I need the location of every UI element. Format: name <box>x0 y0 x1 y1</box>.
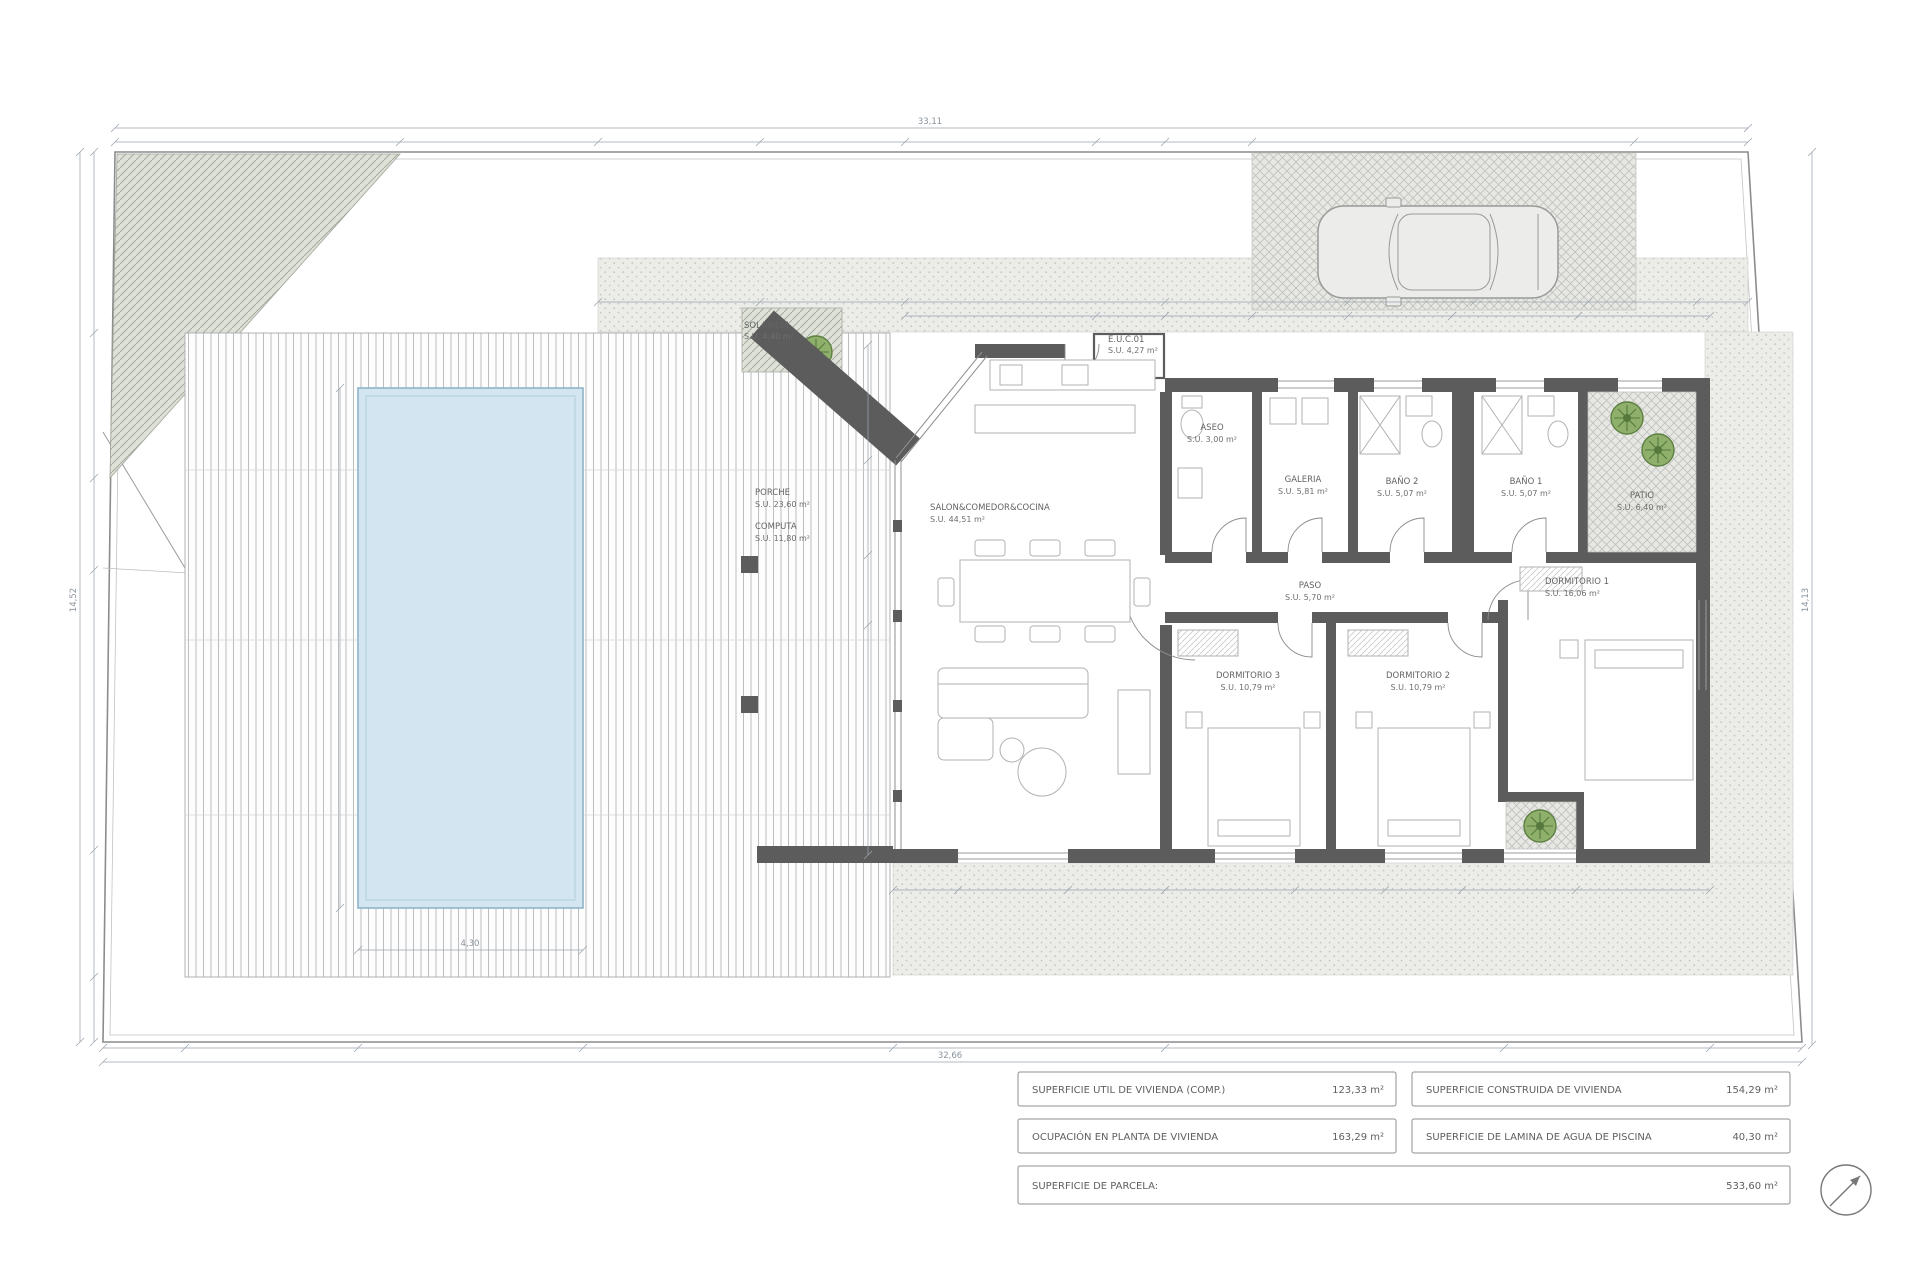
dim-bottom-total: 32,66 <box>938 1051 962 1061</box>
svg-text:S.U. 10,79 m²: S.U. 10,79 m² <box>1390 683 1445 692</box>
car-top-view <box>1318 198 1558 306</box>
table-row-value: 163,29 m² <box>1332 1132 1384 1143</box>
plant-icon <box>1611 402 1643 434</box>
floor-plan-drawing: 33,11 32,66 14,52 14,13 4,30 SALON&COMED… <box>0 0 1920 1280</box>
room-label-bano2: BAÑO 2 <box>1386 476 1419 487</box>
dim-top-total: 33,11 <box>918 117 942 127</box>
room-label-aseo: ASEO <box>1200 423 1224 433</box>
table-row-value: 123,33 m² <box>1332 1085 1384 1096</box>
room-label-dorm1: DORMITORIO 1 <box>1545 577 1609 587</box>
room-label-computa: COMPUTA <box>755 522 797 532</box>
room-label-porche: PORCHE <box>755 488 790 498</box>
room-label-dorm2: DORMITORIO 2 <box>1386 671 1450 681</box>
dim-left-total: 14,52 <box>69 588 79 612</box>
floor-plan-page: 33,11 32,66 14,52 14,13 4,30 SALON&COMED… <box>0 0 1920 1280</box>
area-summary-table: SUPERFICIE UTIL DE VIVIENDA (COMP.) 123,… <box>1018 1072 1790 1204</box>
dim-pool-width: 4,30 <box>461 939 480 949</box>
svg-text:S.U. 44,51 m²: S.U. 44,51 m² <box>930 515 985 524</box>
table-row-label: OCUPACIÓN EN PLANTA DE VIVIENDA <box>1032 1130 1218 1143</box>
room-label-dorm3: DORMITORIO 3 <box>1216 671 1280 681</box>
svg-text:S.U. 5,81 m²: S.U. 5,81 m² <box>1278 487 1328 496</box>
svg-text:S.U. 5,07 m²: S.U. 5,07 m² <box>1377 489 1427 498</box>
table-row-value: 154,29 m² <box>1726 1085 1778 1096</box>
svg-text:S.U. 5,70 m²: S.U. 5,70 m² <box>1285 593 1335 602</box>
table-row-label: SUPERFICIE UTIL DE VIVIENDA (COMP.) <box>1032 1085 1225 1096</box>
table-row-label: SUPERFICIE DE LAMINA DE AGUA DE PISCINA <box>1426 1132 1652 1143</box>
svg-text:S.U. 6,40 m²: S.U. 6,40 m² <box>1617 503 1667 512</box>
north-arrow-icon <box>1821 1165 1871 1215</box>
svg-text:S.U. 3,00 m²: S.U. 3,00 m² <box>1187 435 1237 444</box>
svg-text:S.U. 5,07 m²: S.U. 5,07 m² <box>1501 489 1551 498</box>
room-label-euc01: E.U.C.01 <box>1108 335 1144 345</box>
room-label-solarium: SOLARIUM <box>744 321 789 331</box>
table-row-label: SUPERFICIE CONSTRUIDA DE VIVIENDA <box>1426 1085 1622 1096</box>
table-row-value: 533,60 m² <box>1726 1181 1778 1192</box>
svg-text:S.U. 16,06 m²: S.U. 16,06 m² <box>1545 589 1600 598</box>
svg-text:S.U. 10,79 m²: S.U. 10,79 m² <box>1220 683 1275 692</box>
room-label-salon: SALON&COMEDOR&COCINA <box>930 503 1050 513</box>
dim-right-total: 14,13 <box>1801 588 1811 612</box>
svg-text:S.U. 11,80 m²: S.U. 11,80 m² <box>755 534 810 543</box>
room-label-paso: PASO <box>1299 581 1322 591</box>
plant-icon <box>1642 434 1674 466</box>
svg-text:S.U. 4,40 m²: S.U. 4,40 m² <box>744 332 794 341</box>
svg-text:S.U. 23,60 m²: S.U. 23,60 m² <box>755 500 810 509</box>
room-label-patio: PATIO <box>1630 491 1654 501</box>
table-row-value: 40,30 m² <box>1732 1132 1778 1143</box>
swimming-pool <box>358 388 583 908</box>
table-row-label: SUPERFICIE DE PARCELA: <box>1032 1181 1158 1192</box>
room-label-bano1: BAÑO 1 <box>1510 476 1543 487</box>
plant-icon <box>1524 810 1556 842</box>
svg-text:S.U. 4,27 m²: S.U. 4,27 m² <box>1108 346 1158 355</box>
room-label-galeria: GALERIA <box>1285 475 1322 485</box>
